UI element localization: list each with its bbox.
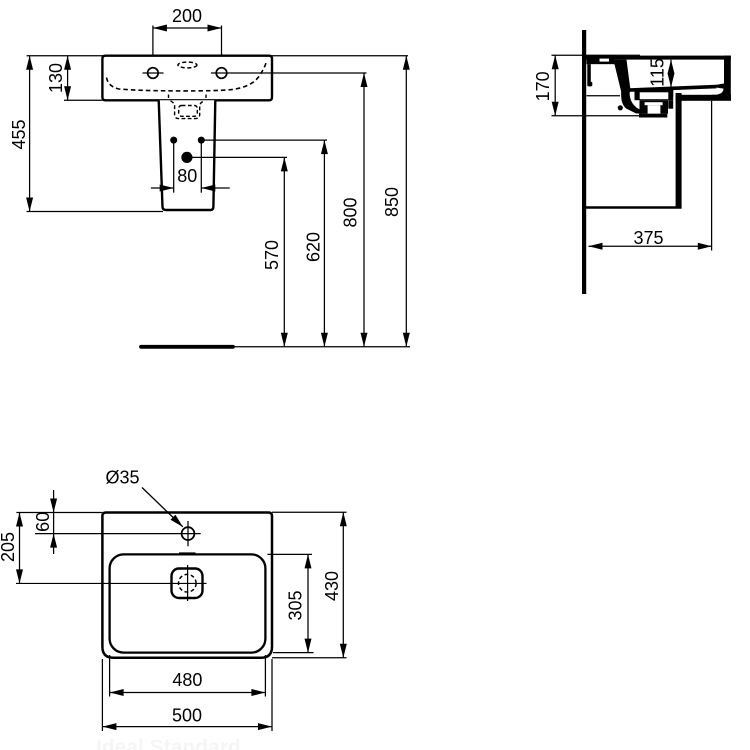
svg-text:375: 375 [633, 228, 663, 248]
svg-text:620: 620 [304, 232, 324, 262]
svg-text:500: 500 [172, 706, 202, 726]
svg-text:800: 800 [341, 197, 361, 227]
svg-text:170: 170 [533, 71, 553, 101]
svg-text:430: 430 [322, 571, 342, 601]
svg-text:80: 80 [177, 166, 197, 186]
svg-text:850: 850 [382, 187, 402, 217]
svg-text:60: 60 [33, 512, 53, 532]
svg-text:130: 130 [46, 63, 66, 93]
svg-text:570: 570 [262, 240, 282, 270]
svg-text:480: 480 [172, 670, 202, 690]
svg-text:205: 205 [0, 532, 18, 562]
svg-text:Ø35: Ø35 [105, 468, 139, 488]
svg-text:305: 305 [286, 590, 306, 620]
svg-text:Ideal Standard: Ideal Standard [96, 736, 241, 750]
svg-text:455: 455 [9, 119, 29, 149]
svg-text:200: 200 [172, 6, 202, 26]
svg-text:115: 115 [648, 58, 668, 87]
